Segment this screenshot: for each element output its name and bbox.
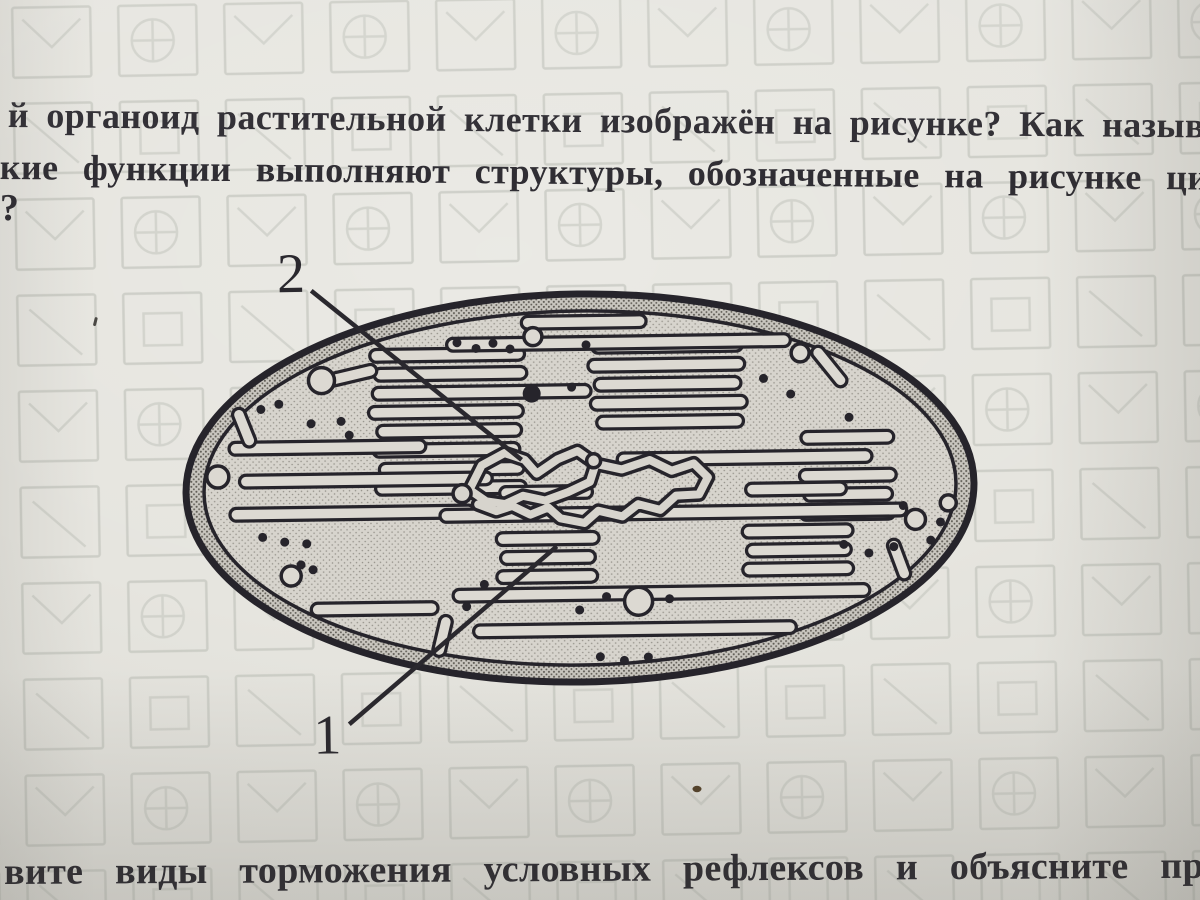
paper-specks	[0, 0, 1200, 900]
speck	[93, 317, 98, 326]
photographed-exam-page: й органоид растительной клетки изображён…	[0, 0, 1200, 900]
speck	[693, 786, 702, 792]
